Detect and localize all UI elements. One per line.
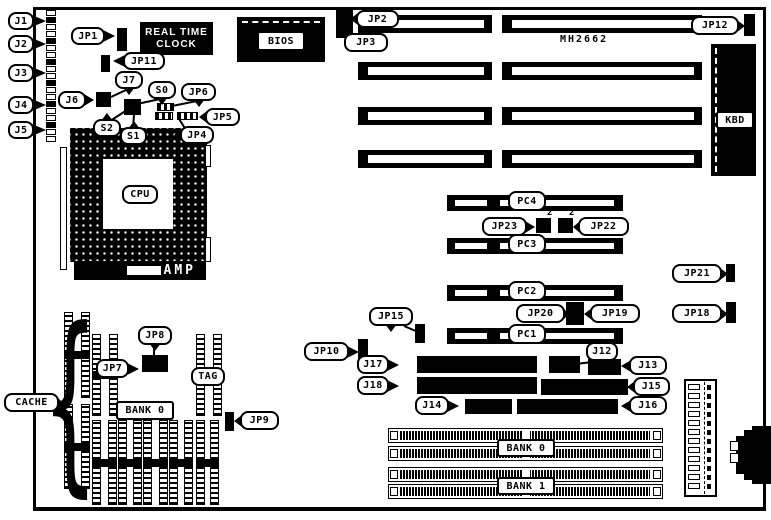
callout-label-j14: J14 (422, 400, 442, 411)
callout-pc1: PC1 (508, 324, 546, 344)
callout-pointer-j2 (32, 38, 46, 50)
cache-chip-body (143, 459, 168, 467)
cache-chip-body (92, 459, 117, 467)
callout-label-jp22: JP22 (590, 221, 616, 232)
callout-label-jp8: JP8 (145, 330, 165, 341)
callout-j14: J14 (415, 396, 449, 415)
callout-jp18: JP18 (672, 304, 722, 323)
edge-strip-cell (46, 10, 56, 16)
simm-latch-left (390, 431, 398, 440)
callout-label-jp5: JP5 (213, 112, 233, 123)
callout-jp9: JP9 (240, 411, 279, 430)
callout-s2: S2 (93, 119, 121, 137)
callout-label-j7: J7 (122, 75, 135, 86)
callout-pointer-j3 (32, 67, 46, 79)
callout-label-jp11: JP11 (131, 56, 157, 67)
power-connector-pin (688, 411, 700, 417)
simm-latch-left (390, 470, 398, 479)
callout-label-jp2: JP2 (368, 14, 388, 25)
callout-j15: J15 (633, 377, 670, 396)
power-connector-pin (688, 474, 700, 480)
callout-jp20: JP20 (516, 304, 565, 323)
callout-j3: J3 (8, 64, 34, 82)
jumper-j6-j (96, 92, 111, 107)
simm-latch-right (653, 487, 661, 496)
component-bar (205, 237, 211, 262)
callout-bank0: BANK 0 (497, 439, 555, 457)
callout-s1: S1 (120, 127, 147, 145)
power-connector-pin-mark (707, 439, 711, 444)
power-connector-pin-mark (707, 457, 711, 462)
power-connector-pin (688, 483, 700, 489)
jp23-pin2-label: 2 (547, 208, 552, 218)
power-connector-pin (688, 393, 700, 399)
jumper-jp1-j (117, 28, 127, 51)
pin-header-j16 (517, 399, 618, 414)
callout-j16: J16 (629, 396, 667, 415)
callout-label-jp7: JP7 (103, 363, 123, 374)
edge-strip-cell (46, 122, 56, 128)
isa-slot-groove (368, 155, 484, 163)
motherboard-diagram: AMP REAL TIME CLOCK MH2662 2 2 { // Buil… (0, 0, 771, 520)
callout-jp11: JP11 (123, 52, 165, 70)
pci-slot-groove (455, 333, 487, 339)
component-bar (60, 147, 67, 270)
callout-label-jp1: JP1 (78, 31, 98, 42)
callout-label-j17: J17 (363, 359, 383, 370)
jumper-jp5-j1 (155, 112, 173, 120)
power-connector-pin-mark (707, 475, 711, 480)
edge-strip-cell (46, 17, 56, 23)
callout-label-jp19: JP19 (602, 308, 628, 319)
edge-strip-cell (46, 38, 56, 44)
rtc-label-line1: REAL TIME (145, 27, 208, 39)
cache-chip-body (169, 459, 193, 467)
edge-strip-cell (46, 52, 56, 58)
amp-slot (127, 266, 161, 275)
simm-latch-right (653, 449, 661, 458)
pin-header-j18 (417, 377, 537, 394)
callout-label-jp6: JP6 (189, 87, 209, 98)
edge-strip-cell (46, 80, 56, 86)
callout-label-pc4: PC4 (517, 196, 537, 207)
isa-slot-groove (512, 20, 694, 28)
callout-label-j18: J18 (363, 380, 383, 391)
callout-j1: J1 (8, 12, 34, 30)
pci-slot-groove (455, 290, 487, 296)
callout-j5: J5 (8, 121, 34, 139)
jumper-jp15-j (415, 324, 425, 343)
din-connector-pin (730, 441, 739, 451)
callout-j18: J18 (357, 376, 389, 395)
callout-label-jp15: JP15 (378, 311, 404, 322)
callout-j12: J12 (586, 342, 618, 361)
callout-tag: TAG (191, 367, 225, 386)
edge-strip-cell (46, 101, 56, 107)
callout-jp8: JP8 (138, 326, 172, 345)
jumper-jp12-j (744, 14, 755, 36)
edge-strip-cell (46, 73, 56, 79)
callout-label-tag: TAG (198, 371, 218, 382)
pin-header-j17 (417, 356, 537, 373)
cache-chip-body (64, 351, 90, 359)
callout-jp15: JP15 (369, 307, 413, 326)
callout-label-s2: S2 (100, 123, 113, 134)
callout-jp21: JP21 (672, 264, 722, 283)
cache-chip-body (196, 459, 219, 467)
power-connector-pin (688, 456, 700, 462)
callout-label-j16: J16 (638, 400, 658, 411)
callout-label-pc3: PC3 (517, 239, 537, 250)
isa-slot-groove (512, 112, 694, 120)
callout-jp12: JP12 (691, 16, 739, 35)
callout-jp10: JP10 (304, 342, 349, 361)
callout-label-jp10: JP10 (313, 346, 339, 357)
edge-strip-cell (46, 115, 56, 121)
callout-label-jp18: JP18 (684, 308, 710, 319)
power-connector-pin (688, 420, 700, 426)
callout-jp3: JP3 (344, 33, 388, 52)
callout-pointer-j5 (32, 124, 46, 136)
isa-slot-groove (512, 155, 694, 163)
callout-pc4: PC4 (508, 191, 546, 211)
callout-jp4: JP4 (180, 126, 214, 144)
edge-strip-cell (46, 45, 56, 51)
jumper-jp22-j (558, 218, 573, 233)
isa-slot-groove (368, 67, 484, 75)
jumper-jp11-j (101, 55, 110, 72)
pin-header-j14 (465, 399, 512, 414)
amp-label: AMP (164, 263, 196, 278)
edge-strip-cell (46, 129, 56, 135)
jumper-jp23-j (536, 218, 551, 233)
callout-label-j12: J12 (592, 346, 612, 357)
edge-strip-cell (46, 108, 56, 114)
pci-slot-groove (455, 200, 487, 206)
power-connector-pin-mark (707, 421, 711, 426)
callout-label-j15: J15 (642, 381, 662, 392)
jumper-jp5-j2 (177, 112, 198, 120)
jumper-s-block (124, 99, 141, 115)
callout-label-jp4: JP4 (187, 130, 207, 141)
callout-label-cache: CACHE (15, 397, 48, 408)
edge-strip-cell (46, 94, 56, 100)
din-connector-pin (730, 453, 739, 463)
power-connector-pin-mark (707, 430, 711, 435)
jumper-jp9-j (225, 412, 234, 431)
callout-label-cpu: CPU (130, 189, 150, 200)
callout-label-bank0: BANK 0 (506, 443, 545, 454)
callout-pointer-j4 (32, 99, 46, 111)
simm-latch-right (653, 431, 661, 440)
real-time-clock-chip: REAL TIME CLOCK (140, 22, 213, 55)
pci-slot-groove (455, 243, 487, 249)
power-connector-pin (688, 447, 700, 453)
callout-pointer-j1 (32, 15, 46, 27)
edge-strip-cell (46, 24, 56, 30)
callout-pc3: PC3 (508, 234, 546, 254)
power-connector-pin-mark (707, 412, 711, 417)
callout-j4: J4 (8, 96, 34, 114)
callout-bios: BIOS (257, 31, 305, 51)
callout-label-j4: J4 (14, 100, 27, 111)
callout-j7: J7 (115, 71, 143, 89)
callout-bank0-cache: BANK 0 (116, 401, 174, 420)
callout-label-j13: J13 (638, 360, 658, 371)
isa-slot-groove (512, 67, 694, 75)
callout-label-j6: J6 (65, 95, 78, 106)
edge-strip-cell (46, 66, 56, 72)
rtc-label-line2: CLOCK (156, 39, 197, 51)
power-connector-pin-mark (707, 403, 711, 408)
callout-cache: CACHE (4, 393, 59, 412)
callout-jp22: JP22 (578, 217, 629, 236)
callout-label-jp3: JP3 (356, 37, 376, 48)
callout-kbd: KBD (716, 111, 754, 129)
callout-label-pc1: PC1 (517, 329, 537, 340)
power-connector-pin (688, 465, 700, 471)
power-connector-pin (688, 402, 700, 408)
callout-label-pc2: PC2 (517, 286, 537, 297)
power-connector-pin (688, 384, 700, 390)
component-bar (205, 145, 211, 167)
power-connector-pin (688, 438, 700, 444)
callout-j6: J6 (58, 91, 86, 109)
bios-chip-notch (242, 21, 320, 23)
callout-jp7: JP7 (96, 359, 129, 378)
callout-j2: J2 (8, 35, 34, 53)
pin-header-j12 (549, 356, 580, 373)
power-connector-pin-mark (707, 484, 711, 489)
simm-latch-left (390, 487, 398, 496)
edge-strip-cell (46, 136, 56, 142)
edge-strip-cell (46, 31, 56, 37)
callout-label-s1: S1 (127, 131, 140, 142)
callout-label-jp21: JP21 (684, 268, 710, 279)
power-connector-pin-mark (707, 394, 711, 399)
pin-header-j15 (541, 379, 628, 395)
jumper-jp78-j (142, 355, 168, 372)
keyboard-connector (711, 44, 756, 176)
isa-slot-groove (368, 112, 484, 120)
callout-cpu: CPU (122, 185, 158, 204)
callout-jp5: JP5 (205, 108, 240, 126)
callout-label-bank0-cache: BANK 0 (125, 405, 164, 416)
callout-s0: S0 (148, 81, 176, 99)
callout-label-j3: J3 (14, 68, 27, 79)
callout-j13: J13 (629, 356, 667, 375)
callout-label-bios: BIOS (268, 36, 294, 47)
simm-latch-left (390, 449, 398, 458)
callout-jp6: JP6 (181, 83, 216, 101)
chipset-label: MH2662 (560, 34, 640, 50)
callout-j17: J17 (357, 355, 389, 374)
callout-jp2: JP2 (356, 10, 399, 28)
callout-label-bank1: BANK 1 (506, 481, 545, 492)
cache-chip-body (64, 443, 90, 451)
callout-label-j1: J1 (14, 16, 27, 27)
power-connector-pin-mark (707, 466, 711, 471)
edge-strip-cell (46, 87, 56, 93)
callout-label-jp9: JP9 (250, 415, 270, 426)
callout-label-jp23: JP23 (491, 221, 517, 232)
edge-strip-cell (46, 59, 56, 65)
callout-label-s0: S0 (155, 85, 168, 96)
simm-latch-right (653, 470, 661, 479)
callout-pc2: PC2 (508, 281, 546, 301)
callout-bank1: BANK 1 (497, 477, 555, 495)
power-connector-pin (688, 429, 700, 435)
power-connector-divider (704, 382, 705, 494)
power-connector-pin-mark (707, 448, 711, 453)
keyboard-connector-edge (715, 48, 717, 172)
jp22-pin2-label: 2 (569, 208, 574, 218)
callout-label-jp20: JP20 (527, 308, 553, 319)
callout-label-kbd: KBD (725, 115, 745, 126)
callout-label-jp12: JP12 (702, 20, 728, 31)
callout-label-j2: J2 (14, 39, 27, 50)
callout-jp1: JP1 (71, 27, 105, 45)
callout-jp19: JP19 (590, 304, 640, 323)
cache-chip-body (118, 459, 142, 467)
callout-label-j5: J5 (14, 125, 27, 136)
power-connector-pin-mark (707, 385, 711, 390)
